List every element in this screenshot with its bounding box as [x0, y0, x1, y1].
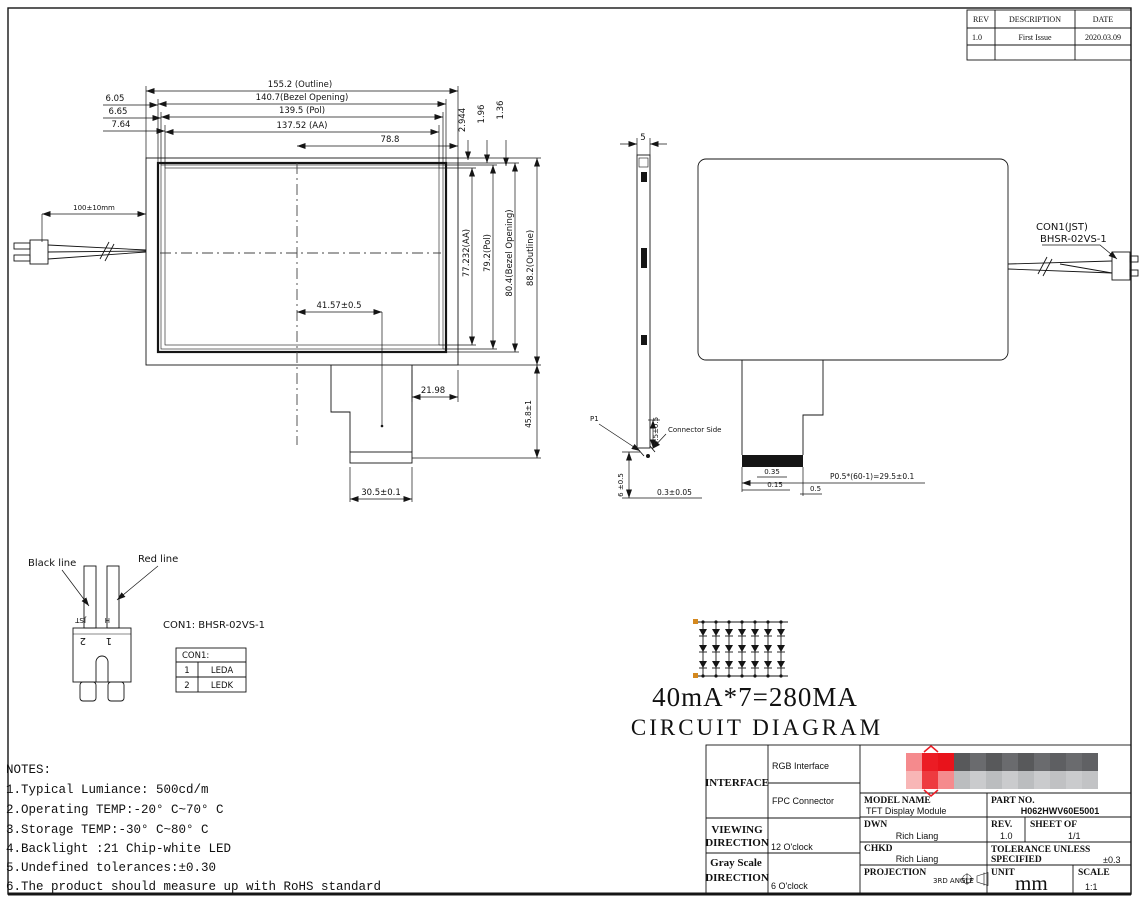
date-header: DATE	[1093, 15, 1114, 24]
sheet-label: SHEET OF	[1030, 820, 1077, 830]
rev-header: REV	[973, 15, 989, 24]
dim-outline-height: 88.2(Outline)	[526, 230, 536, 286]
notes-block: NOTES: 1.Typical Lumiance: 500cd/m 2.Ope…	[6, 763, 381, 894]
dim-tip: 3.5±0.5	[652, 417, 660, 445]
dim-fpc-width: 30.5±0.1	[361, 488, 401, 498]
dim-tail-offset: 41.57±0.5	[317, 301, 362, 311]
note-3: 3.Storage TEMP:-30° C~80° C	[6, 823, 209, 837]
viewing-label-2: DIRECTION	[705, 837, 769, 849]
dim-pol-height: 79.2(Pol)	[483, 234, 493, 272]
scale-value: 1:1	[1085, 882, 1098, 892]
dim-bezel-width: 140.7(Bezel Opening)	[256, 93, 349, 103]
dim-top-3: 1.36	[496, 101, 506, 120]
dim-outline-width: 155.2 (Outline)	[268, 80, 332, 90]
interface-row2: FPC Connector	[772, 796, 834, 806]
backlight-cable: 100±10mm	[14, 204, 146, 264]
rev-description: First Issue	[1018, 33, 1052, 42]
dim-fpc-c: 0.5	[810, 485, 821, 493]
dim-bezel-height: 80.4(Bezel Opening)	[505, 209, 515, 296]
sheet-value: 1/1	[1068, 831, 1081, 841]
con1-pin-table: CON1: 1 LEDA 2 LEDK	[176, 648, 246, 692]
dim-cable-length: 100±10mm	[73, 204, 115, 212]
dim-left-3: 7.64	[112, 120, 131, 130]
unit-label: UNIT	[991, 868, 1015, 878]
dim-fpc-a: 0.35	[764, 468, 780, 476]
interface-row1: RGB Interface	[772, 761, 829, 771]
front-fpc-tail: 41.57±0.5 21.98 30.5±0.1	[297, 301, 458, 502]
label-connector-side: Connector Side	[668, 426, 721, 434]
rear-fpc-tail	[742, 360, 823, 455]
mark-pin2: 2	[80, 635, 86, 646]
rev-value: 1.0	[1000, 831, 1013, 841]
model-name-value: TFT Display Module	[866, 806, 946, 816]
dwn-label: DWN	[864, 820, 887, 830]
rear-view: 0.35 0.15 0.5 P0.5*(60-1)=29.5±0.1 CON1(…	[698, 159, 1138, 496]
grayscale-label-2: DIRECTION	[705, 872, 769, 884]
dim-half-width: 78.8	[381, 135, 400, 145]
rear-outline-rect	[698, 159, 1008, 360]
projection-value: 3RD ANGLE	[933, 877, 974, 885]
grayscale-label-1: Gray Scale	[710, 857, 762, 869]
note-2: 2.Operating TEMP:-20° C~70° C	[6, 803, 224, 817]
mark-h: H	[105, 616, 110, 624]
con1-table-header: CON1:	[182, 651, 209, 661]
tolerance-value: ±0.3	[1103, 855, 1120, 865]
note-5: 5.Undefined tolerances:±0.30	[6, 861, 216, 875]
dim-top-2: 1.96	[477, 105, 487, 124]
label-black-line: Black line	[28, 558, 76, 569]
front-aa-rect	[165, 168, 439, 345]
scale-label: SCALE	[1078, 868, 1110, 878]
cathode-terminal	[693, 673, 698, 678]
rev-label: REV.	[991, 820, 1012, 830]
dim-left-2: 6.65	[109, 107, 128, 117]
part-no-value: H062HWV60E5001	[1021, 806, 1100, 816]
front-pol-rect	[161, 165, 443, 349]
unit-value: mm	[1015, 871, 1048, 895]
model-name-label: MODEL NAME	[864, 796, 931, 806]
con1-row2-pin: 2	[184, 681, 189, 691]
con1-row1-pin: 1	[184, 666, 189, 676]
tolerance-label-1: TOLERANCE UNLESS	[991, 845, 1090, 855]
engineering-drawing-sheet: REV DESCRIPTION DATE 1.0 First Issue 202…	[0, 0, 1139, 902]
circuit-title: CIRCUIT DIAGRAM	[631, 715, 883, 740]
dim-pol-width: 139.5 (Pol)	[279, 106, 325, 116]
note-6: 6.The product should measure up with RoH…	[6, 880, 381, 894]
label-con1-part: BHSR-02VS-1	[1040, 234, 1107, 245]
drawing-canvas: REV DESCRIPTION DATE 1.0 First Issue 202…	[0, 0, 1139, 902]
mark-jst: JST	[74, 616, 87, 624]
side-view: 5 P1 Connector Side 3.5±0.5 6 ±0.5 0.3±0…	[590, 133, 721, 498]
dim-thickness: 5	[640, 133, 645, 143]
dim-left-1: 6.05	[106, 94, 125, 104]
circuit-current-label: 40mA*7=280MA	[652, 682, 858, 712]
dim-tail-right: 21.98	[421, 386, 445, 396]
mark-pin1: 1	[106, 635, 112, 646]
dim-aa-height: 77.232(AA)	[462, 229, 472, 277]
dim-gap: 0.3±0.05	[657, 488, 692, 497]
part-no-label: PART NO.	[991, 796, 1035, 806]
title-block: INTERFACE RGB Interface FPC Connector VI…	[705, 745, 1131, 895]
front-outline-rect	[146, 158, 458, 365]
label-p1: P1	[590, 415, 599, 423]
viewing-label-1: VIEWING	[711, 824, 763, 836]
rev-date: 2020.03.09	[1085, 33, 1121, 42]
fpc-contact-strip	[742, 455, 803, 467]
con1-connector-body	[1112, 252, 1130, 280]
rear-cable	[1008, 252, 1138, 280]
dim-aa-width: 137.52 (AA)	[277, 121, 328, 131]
rev-value: 1.0	[972, 33, 982, 42]
connector-detail: Black line Red line JST H 2 1 CON1: BHSR…	[28, 554, 265, 701]
fpc-tip	[646, 454, 650, 458]
dim-top-1: 2.944	[458, 108, 468, 132]
label-red-line: Red line	[138, 554, 178, 565]
notes-title: NOTES:	[6, 763, 51, 777]
con1-detail-title: CON1: BHSR-02VS-1	[163, 620, 265, 631]
description-header: DESCRIPTION	[1009, 15, 1061, 24]
front-bezel-rect	[158, 163, 446, 352]
grayscale-value: 6 O'clock	[771, 881, 808, 891]
cable-connector-body	[30, 240, 48, 264]
dim-fpc-pitch: P0.5*(60-1)=29.5±0.1	[830, 472, 914, 481]
logo-arrow-up-icon	[924, 746, 938, 752]
chkd-label: CHKD	[864, 844, 893, 854]
note-4: 4.Backlight :21 Chip-white LED	[6, 842, 231, 856]
projection-label: PROJECTION	[864, 868, 926, 878]
anode-terminal	[693, 619, 698, 624]
front-view: 155.2 (Outline) 140.7(Bezel Opening) 139…	[14, 80, 541, 502]
label-con1-jst: CON1(JST)	[1036, 222, 1088, 233]
con1-row1-signal: LEDA	[211, 666, 234, 676]
interface-label: INTERFACE	[705, 777, 769, 789]
dim-fpc-b: 0.15	[767, 481, 783, 489]
circuit-diagram: 40mA*7=280MA CIRCUIT DIAGRAM	[631, 619, 883, 740]
revision-table: REV DESCRIPTION DATE 1.0 First Issue 202…	[967, 10, 1131, 60]
viewing-value: 12 O'clock	[771, 842, 813, 852]
dwn-value: Rich Liang	[896, 831, 939, 841]
led-array	[699, 620, 785, 677]
dim-tail-height: 45.8±1	[524, 400, 533, 428]
tolerance-label-2: SPECIFIED	[991, 855, 1042, 865]
con1-row2-signal: LEDK	[211, 681, 234, 691]
company-logo-mosaic	[906, 753, 1098, 789]
side-profile	[637, 155, 650, 448]
chkd-value: Rich Liang	[896, 854, 939, 864]
dim-bottom: 6 ±0.5	[617, 473, 625, 497]
note-1: 1.Typical Lumiance: 500cd/m	[6, 783, 209, 797]
